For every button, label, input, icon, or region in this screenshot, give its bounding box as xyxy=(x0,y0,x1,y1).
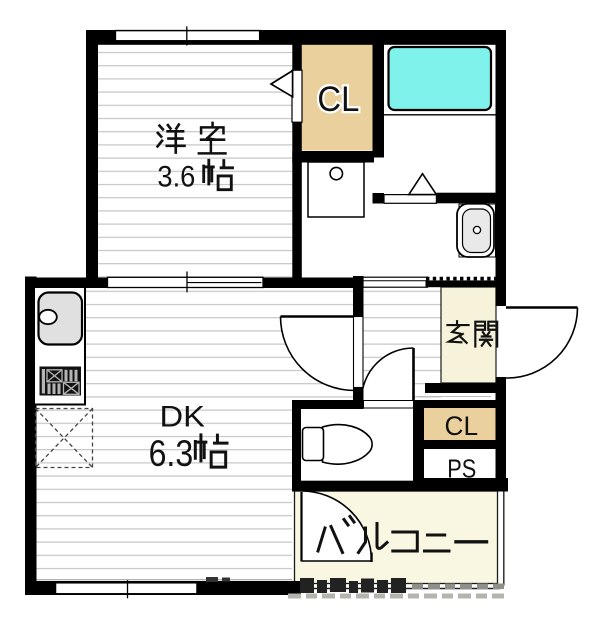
svg-text:PS: PS xyxy=(447,454,476,484)
svg-text:CL: CL xyxy=(317,80,359,119)
svg-text:6.3: 6.3 xyxy=(149,433,194,474)
svg-text:3.6: 3.6 xyxy=(157,161,195,194)
svg-text:DK: DK xyxy=(160,401,206,434)
svg-text:CL: CL xyxy=(445,411,479,441)
